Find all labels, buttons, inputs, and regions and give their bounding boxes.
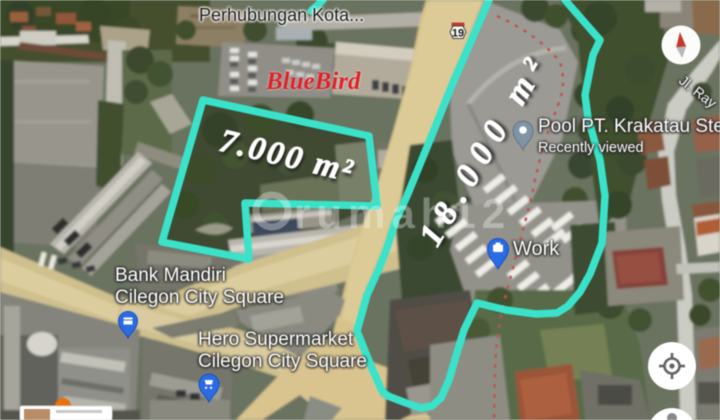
svg-text:rumah12: rumah12: [294, 190, 511, 237]
svg-text:19: 19: [452, 28, 464, 40]
